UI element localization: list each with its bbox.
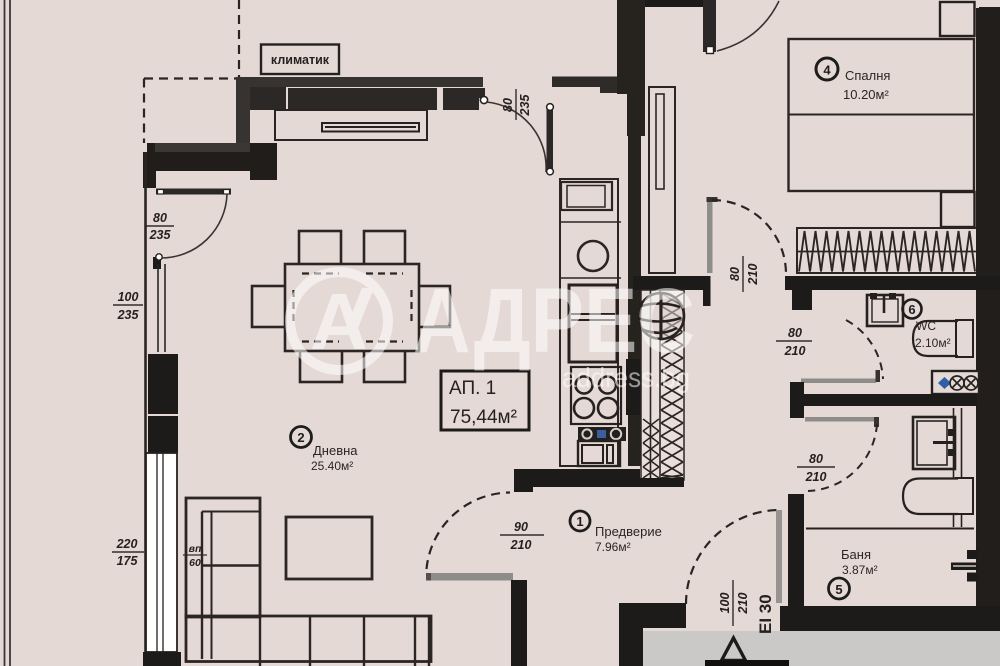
svg-text:210: 210 xyxy=(805,470,827,484)
svg-text:10.20м²: 10.20м² xyxy=(843,87,889,102)
svg-text:1: 1 xyxy=(576,514,583,529)
svg-text:235: 235 xyxy=(117,308,140,322)
svg-text:2: 2 xyxy=(297,430,304,445)
svg-text:Дневна: Дневна xyxy=(313,443,358,458)
svg-text:220: 220 xyxy=(116,537,138,551)
svg-text:90: 90 xyxy=(514,520,528,534)
svg-text:вп: вп xyxy=(189,543,202,555)
svg-text:210: 210 xyxy=(736,593,750,615)
svg-text:210: 210 xyxy=(746,264,760,286)
svg-text:175: 175 xyxy=(117,554,139,568)
svg-text:80: 80 xyxy=(153,211,167,225)
svg-text:2.10м²: 2.10м² xyxy=(915,336,951,350)
svg-text:25.40м²: 25.40м² xyxy=(311,459,353,473)
svg-text:75,44м²: 75,44м² xyxy=(450,407,517,428)
svg-text:80: 80 xyxy=(501,98,515,112)
svg-text:5: 5 xyxy=(835,582,842,597)
svg-text:60: 60 xyxy=(189,557,201,569)
svg-text:Предверие: Предверие xyxy=(595,524,662,539)
svg-text:210: 210 xyxy=(510,538,532,552)
svg-text:80: 80 xyxy=(728,267,742,281)
svg-text:3.87м²: 3.87м² xyxy=(842,563,878,577)
svg-text:7.96м²: 7.96м² xyxy=(595,540,631,554)
svg-text:235: 235 xyxy=(149,228,172,242)
svg-text:климатик: климатик xyxy=(271,53,330,67)
svg-text:210: 210 xyxy=(784,344,806,358)
svg-text:80: 80 xyxy=(788,326,802,340)
svg-text:Баня: Баня xyxy=(841,547,871,562)
svg-text:АДРЕС: АДРЕС xyxy=(413,270,695,372)
svg-text:80: 80 xyxy=(809,452,823,466)
svg-text:235: 235 xyxy=(518,94,532,117)
svg-text:4: 4 xyxy=(823,63,831,78)
svg-text:ЕІ 30: ЕІ 30 xyxy=(756,594,775,634)
svg-text:Спалня: Спалня xyxy=(845,68,890,83)
svg-text:100: 100 xyxy=(718,593,732,614)
svg-text:100: 100 xyxy=(118,290,139,304)
svg-text:АП. 1: АП. 1 xyxy=(449,378,496,399)
svg-text:address.bg: address.bg xyxy=(562,362,690,393)
svg-text:6: 6 xyxy=(908,302,915,317)
